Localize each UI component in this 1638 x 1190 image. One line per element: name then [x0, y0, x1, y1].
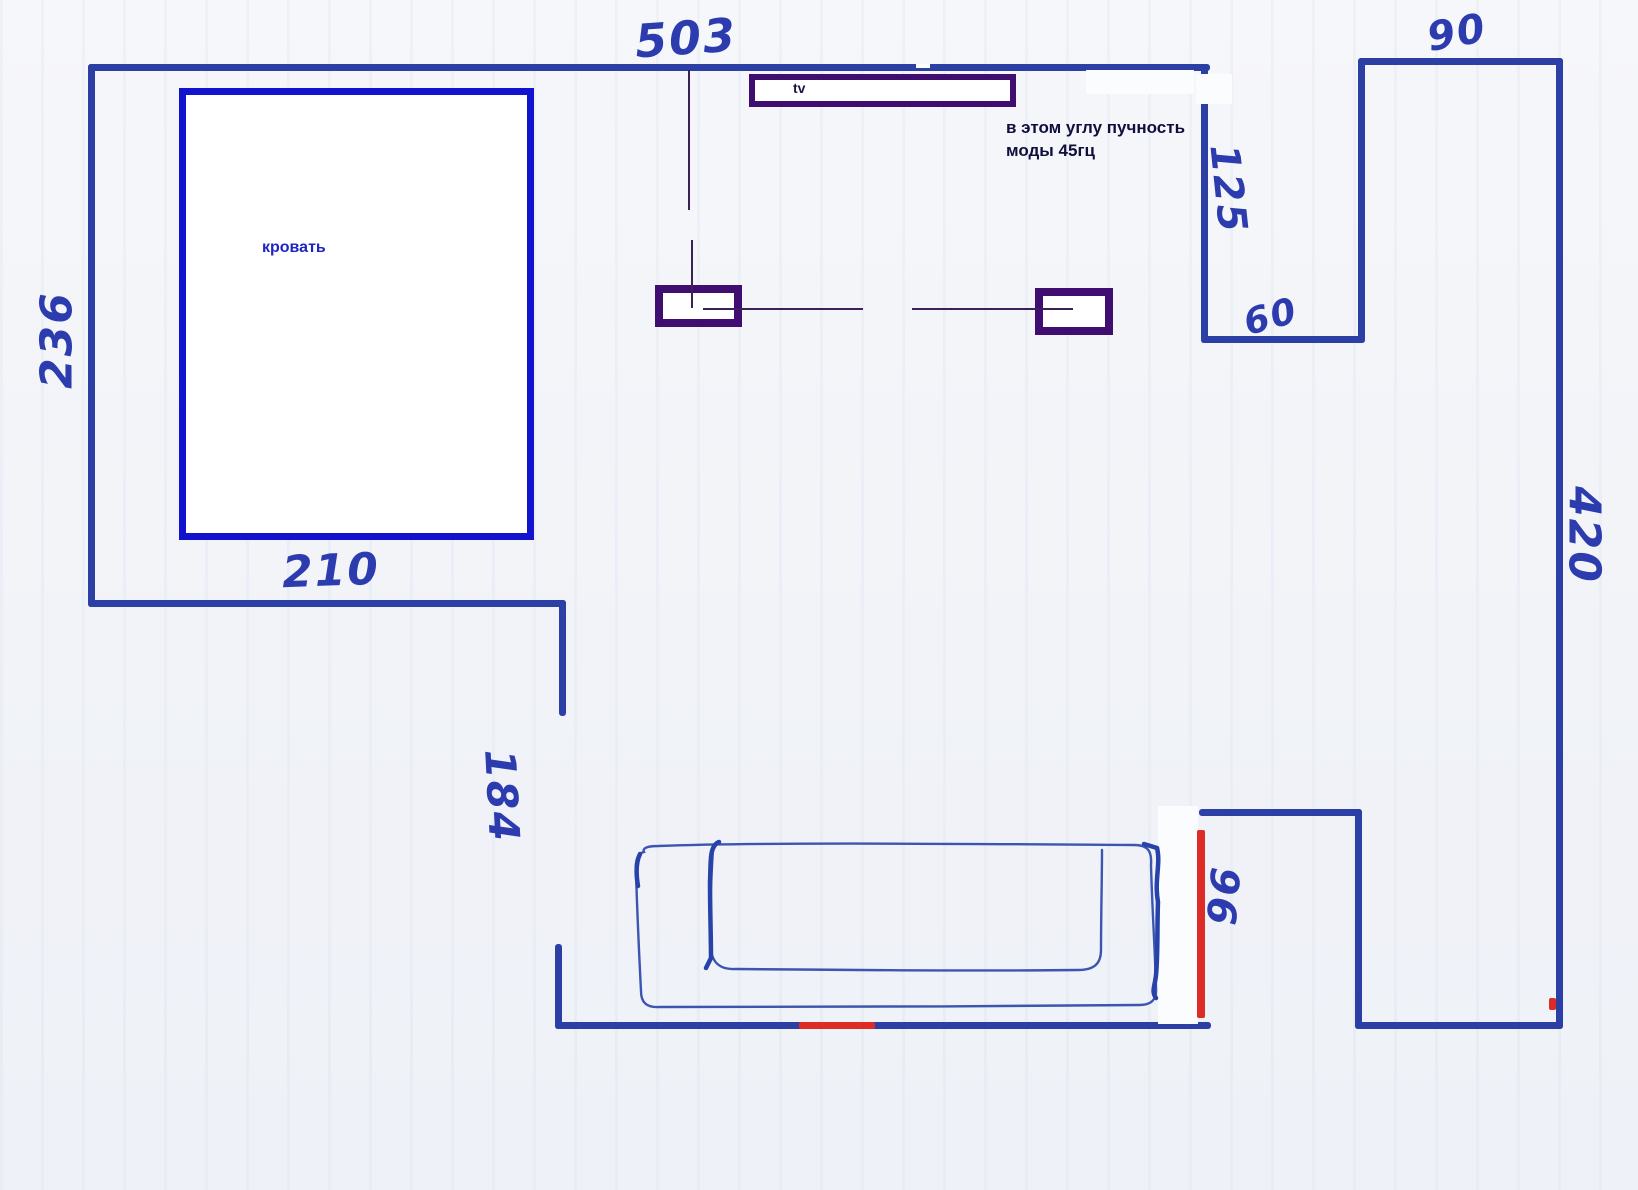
- dim-bed-wall: 210: [281, 544, 381, 598]
- guide-line-vertical: [691, 240, 693, 308]
- tv-rect: [749, 74, 1016, 107]
- whiteout-patch: [1086, 70, 1194, 94]
- wall-protrusion-left: [1358, 58, 1365, 343]
- wall-niche-bottom: [1201, 336, 1365, 343]
- floor-plan-sketch: кровать tv 503 90 236 125 60 420 210 184…: [0, 0, 1638, 1190]
- acoustic-note-line1: в этом углу пучность: [1006, 116, 1185, 139]
- acoustic-note: в этом углу пучность моды 45гц: [1006, 116, 1185, 162]
- sofa-sketch: [600, 820, 1200, 1020]
- wall-bottom-main: [555, 1022, 1211, 1029]
- dim-niche-depth: 125: [1200, 142, 1255, 236]
- wall-doorway-top: [1199, 809, 1362, 816]
- dim-left-wall: 236: [32, 291, 83, 389]
- wall-bed-bottom: [88, 600, 566, 607]
- dim-top-right-wall: 90: [1424, 5, 1491, 61]
- dim-top-wall: 503: [633, 8, 739, 69]
- red-speck: [1549, 998, 1556, 1010]
- acoustic-note-line2: моды 45гц: [1006, 139, 1185, 162]
- bed-label: кровать: [262, 239, 326, 257]
- speaker-right-rect: [1035, 288, 1113, 335]
- wall-protrusion-top: [1358, 58, 1563, 65]
- bed-rect: [179, 88, 534, 540]
- wall-left: [88, 64, 95, 607]
- dim-right-wall: 420: [1559, 486, 1610, 584]
- wall-passage-upper: [559, 600, 566, 716]
- guide-line-horizontal: [703, 308, 863, 310]
- wall-doorway-right: [1355, 809, 1362, 1029]
- wall-passage-lower: [555, 944, 562, 1029]
- dim-doorway: 96: [1196, 865, 1247, 928]
- bottom-red-mark: [799, 1022, 875, 1029]
- wall-bottom-right: [1355, 1022, 1563, 1029]
- speaker-left-rect: [655, 285, 742, 327]
- guide-line-vertical: [688, 70, 690, 210]
- whiteout-patch: [1196, 74, 1232, 104]
- dim-passage: 184: [475, 748, 529, 844]
- guide-line-horizontal: [912, 308, 1073, 310]
- whiteout-patch: [916, 64, 930, 68]
- tv-label: tv: [793, 80, 805, 96]
